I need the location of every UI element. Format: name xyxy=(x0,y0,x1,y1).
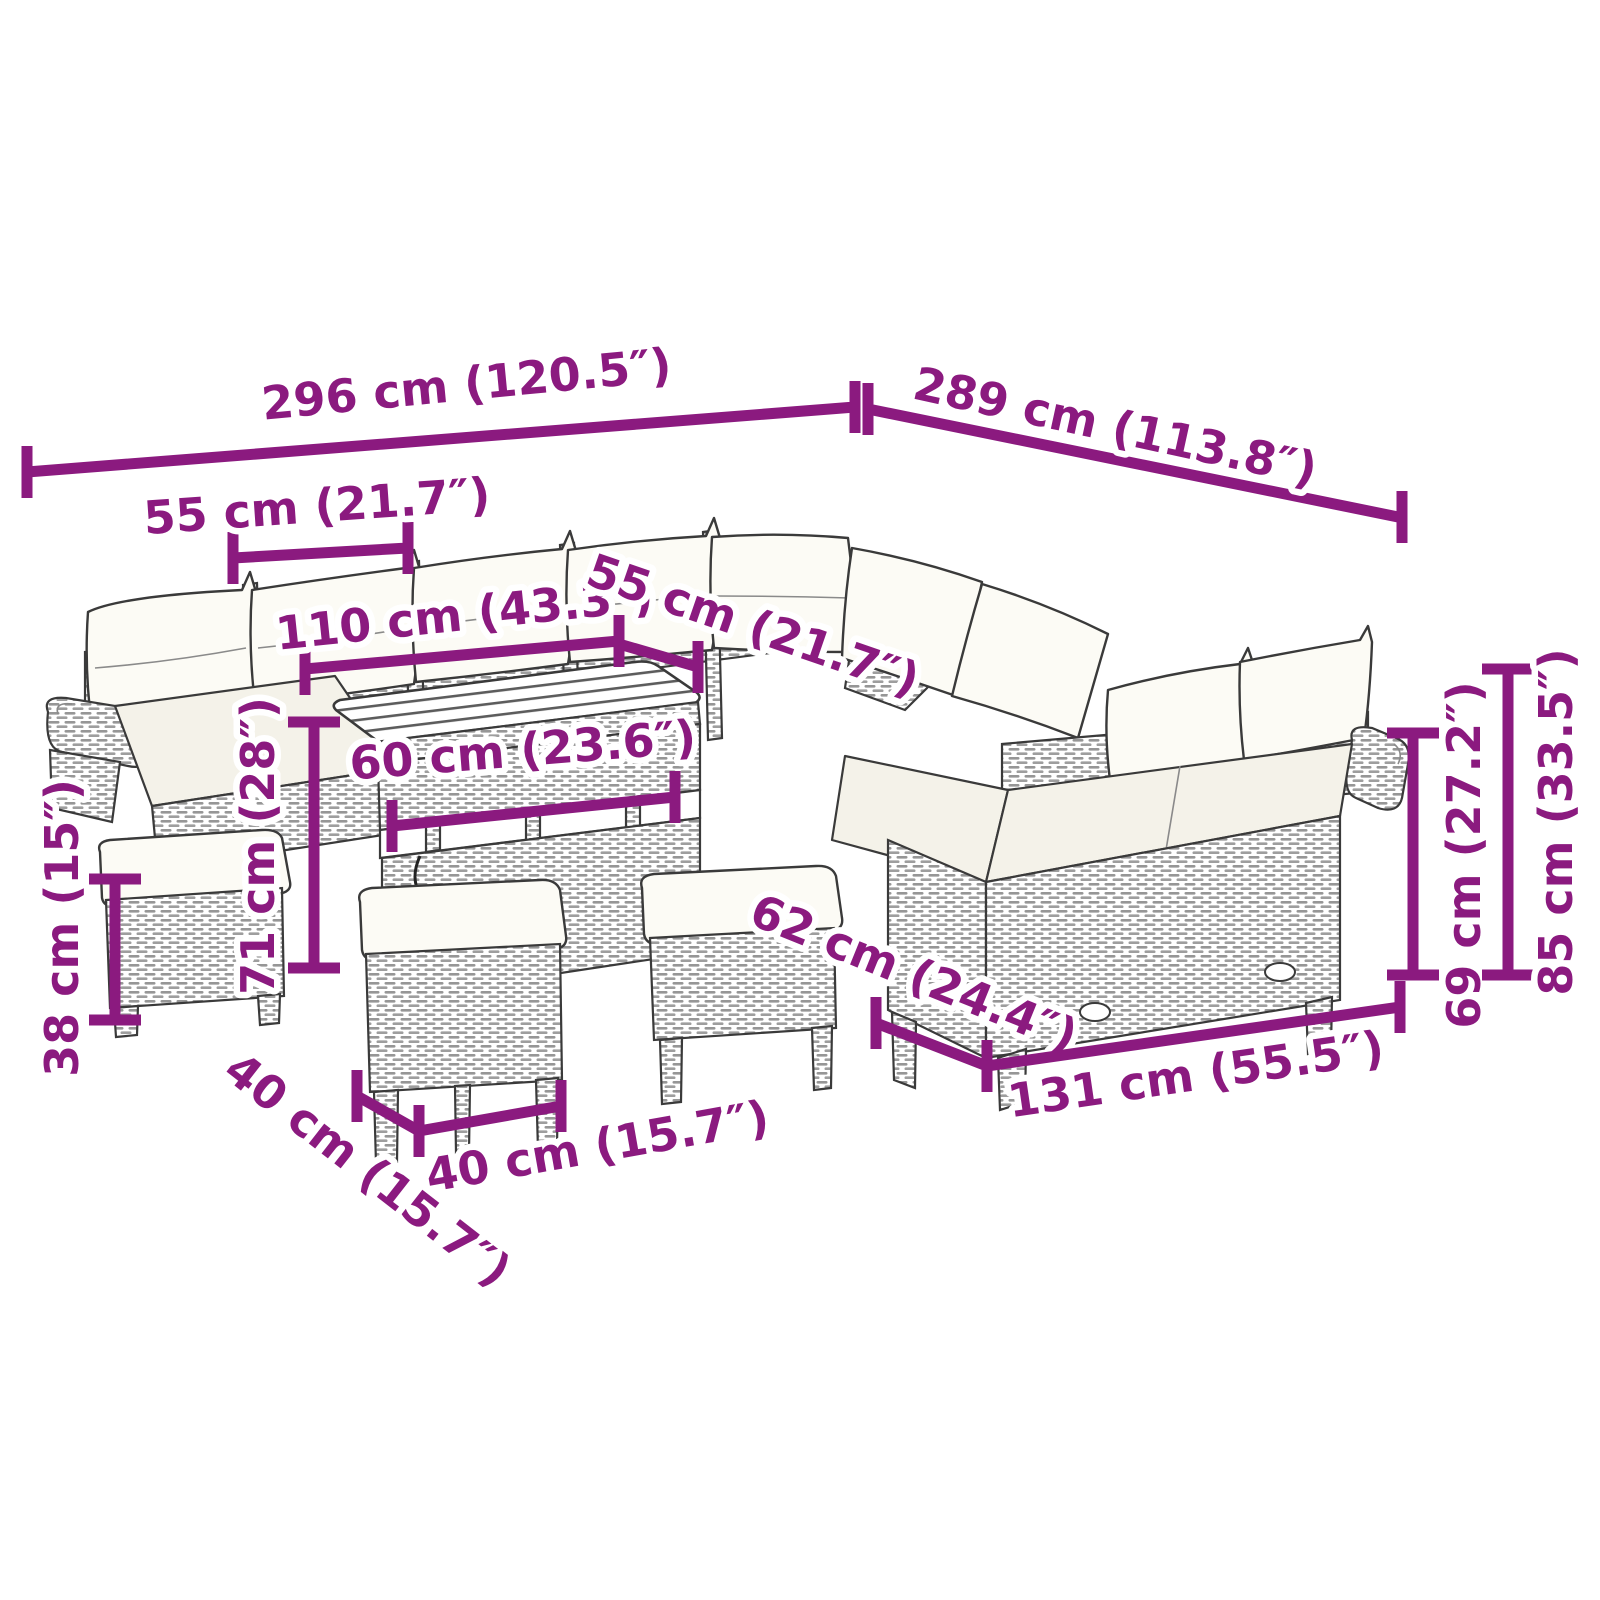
stool-right xyxy=(641,866,842,1104)
right-armrest-scroll xyxy=(1346,727,1408,809)
dim-stool-height-label: 38 cm (15″) xyxy=(35,779,89,1077)
corner-back-cushion xyxy=(952,584,1108,738)
panel-hole-icon xyxy=(1265,963,1295,981)
dim-stool-width: 40 cm (15.7″) xyxy=(419,1080,773,1203)
stool-leg xyxy=(660,1038,682,1104)
dim-table-height-label: 71 cm (28″) xyxy=(231,697,285,995)
stool-leg xyxy=(258,994,280,1025)
dim-overall-height-label: 85 cm (33.5″) xyxy=(1529,648,1583,995)
dimension-annotations: 296 cm (120.5″) 289 cm (113.8″) 55 cm (2… xyxy=(27,337,1583,1297)
dim-armrest-height: 69 cm (27.2″) xyxy=(1387,681,1491,1028)
stool-leg xyxy=(812,1026,832,1090)
dim-stool-width-label: 40 cm (15.7″) xyxy=(421,1089,772,1202)
dim-seat-width-left-label: 55 cm (21.7″) xyxy=(142,467,492,545)
dimension-diagram: 296 cm (120.5″) 289 cm (113.8″) 55 cm (2… xyxy=(0,0,1600,1600)
dim-overall-width-label: 296 cm (120.5″) xyxy=(259,337,674,430)
right-sofa-leg xyxy=(892,1012,916,1088)
dim-overall-height: 85 cm (33.5″) xyxy=(1482,648,1583,995)
diagram-canvas: 296 cm (120.5″) 289 cm (113.8″) 55 cm (2… xyxy=(0,0,1600,1600)
dim-overall-depth: 289 cm (113.8″) xyxy=(868,356,1402,543)
stool-body xyxy=(366,944,562,1092)
